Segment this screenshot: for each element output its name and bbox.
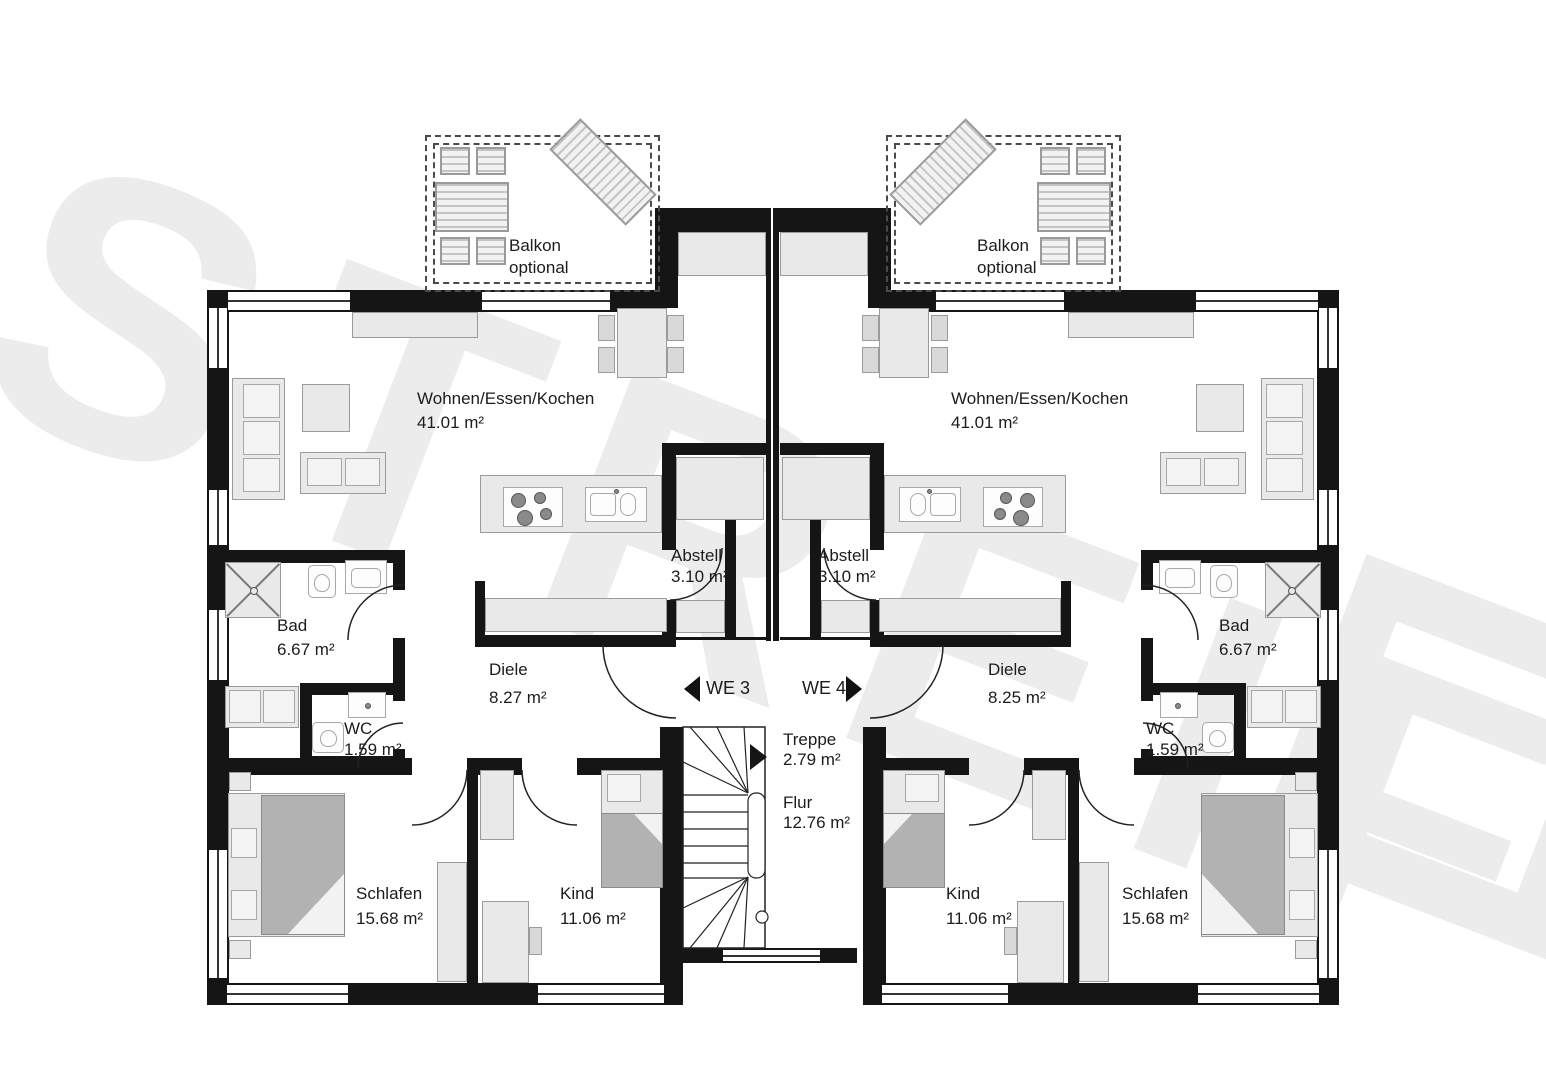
we4-living-label: Wohnen/Essen/Kochen bbox=[951, 389, 1128, 409]
we4-schlafen-area: 15.68 m² bbox=[1122, 909, 1189, 929]
we3-bad-label: Bad bbox=[277, 616, 307, 636]
we3-diele-label: Diele bbox=[489, 660, 528, 680]
we3-balkon-label: Balkon bbox=[509, 236, 561, 256]
we4-living-area: 41.01 m² bbox=[951, 413, 1018, 433]
we3-abstell-area: 3.10 m² bbox=[671, 567, 729, 587]
we4-balkon-optional-label: optional bbox=[977, 258, 1037, 278]
we3-balkon-optional-label: optional bbox=[509, 258, 569, 278]
we4-balkon-label: Balkon bbox=[977, 236, 1029, 256]
flur-area: 12.76 m² bbox=[783, 813, 850, 833]
we3-wc-area: 1.59 m² bbox=[344, 740, 402, 760]
we3-living-label: Wohnen/Essen/Kochen bbox=[417, 389, 594, 409]
we3-schlafen-area: 15.68 m² bbox=[356, 909, 423, 929]
we3-kind-area: 11.06 m² bbox=[560, 909, 626, 929]
we4-diele-label: Diele bbox=[988, 660, 1027, 680]
we4-unit-label: WE 4 bbox=[802, 678, 846, 700]
we4-diele-area: 8.25 m² bbox=[988, 688, 1046, 708]
we4-wc-area: 1.59 m² bbox=[1146, 740, 1204, 760]
we4-wc-label: WC bbox=[1146, 719, 1174, 739]
we3-arrow-icon bbox=[684, 676, 700, 702]
we3-unit-label: WE 3 bbox=[706, 678, 750, 700]
we3-schlafen-label: Schlafen bbox=[356, 884, 422, 904]
we4-abstell-label: Abstell bbox=[818, 546, 869, 566]
we3-kind-label: Kind bbox=[560, 884, 594, 904]
we4-kind-label: Kind bbox=[946, 884, 980, 904]
we4-schlafen-label: Schlafen bbox=[1122, 884, 1188, 904]
we4-abstell-area: 3.10 m² bbox=[818, 567, 876, 587]
treppe-area: 2.79 m² bbox=[783, 750, 841, 770]
we3-abstell-label: Abstell bbox=[671, 546, 722, 566]
floor-plan: STREIF bbox=[0, 0, 1546, 1080]
we3-wc-label: WC bbox=[344, 719, 372, 739]
we3-diele-area: 8.27 m² bbox=[489, 688, 547, 708]
treppe-label: Treppe bbox=[783, 730, 836, 750]
we4-arrow-icon bbox=[846, 676, 862, 702]
we3-living-area: 41.01 m² bbox=[417, 413, 484, 433]
flur-label: Flur bbox=[783, 793, 812, 813]
we3-bad-area: 6.67 m² bbox=[277, 640, 335, 660]
we4-kind-area: 11.06 m² bbox=[946, 909, 1012, 929]
labels-layer: Balkon optional Wohnen/Essen/Kochen 41.0… bbox=[0, 0, 1546, 1080]
we4-bad-area: 6.67 m² bbox=[1219, 640, 1277, 660]
we4-bad-label: Bad bbox=[1219, 616, 1249, 636]
